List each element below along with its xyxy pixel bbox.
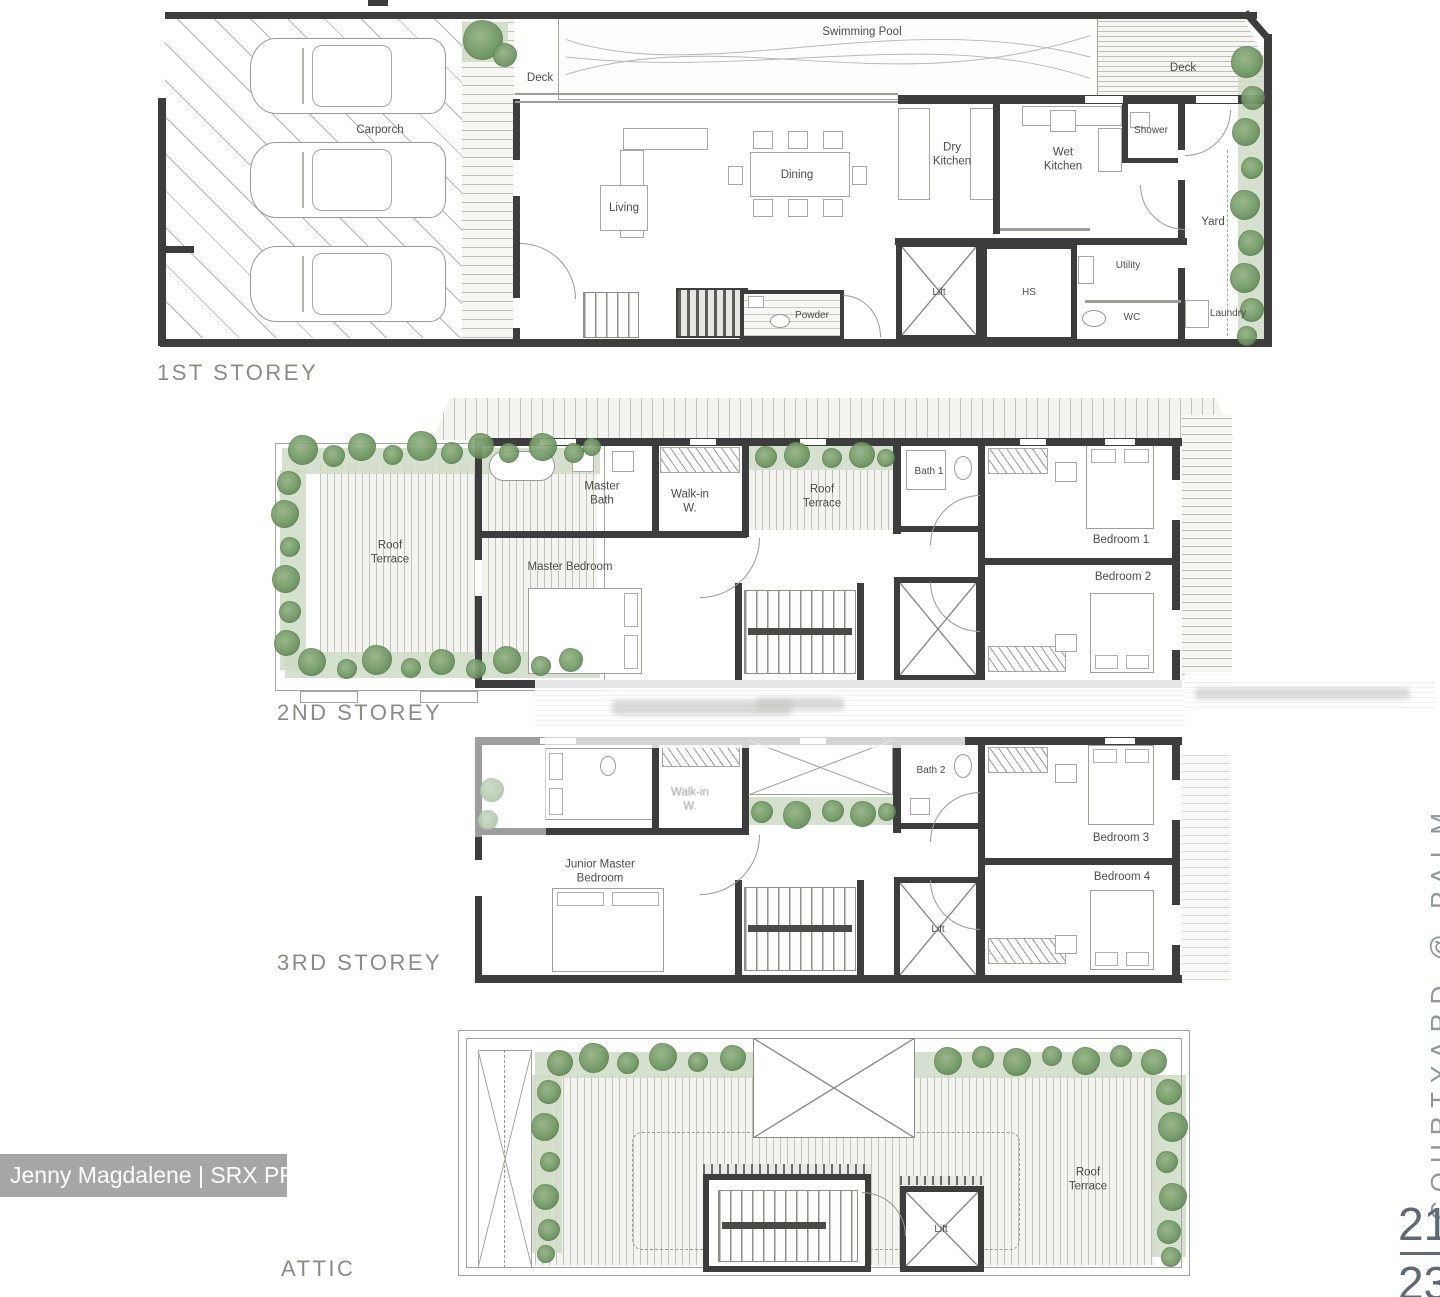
door-swing-icon xyxy=(930,792,980,842)
door-swing-icon xyxy=(700,538,760,598)
smudge xyxy=(756,698,844,710)
wall-opening xyxy=(475,860,482,896)
pillow xyxy=(624,593,638,627)
room-label-yard: Yard xyxy=(1201,215,1224,229)
toilet-icon xyxy=(770,314,790,328)
pillow xyxy=(1124,449,1149,463)
watermark: Jenny Magdalene | SRX PROPERTY xyxy=(0,1154,287,1197)
wall xyxy=(158,246,194,253)
storey-label-2nd: 2ND STOREY xyxy=(277,700,442,726)
window-line xyxy=(515,93,898,95)
room-label-lift-attic: Lift xyxy=(934,1224,947,1237)
door-swing-icon xyxy=(520,243,576,299)
pillow xyxy=(1095,655,1118,669)
window-line xyxy=(515,101,898,103)
wall xyxy=(893,438,901,534)
roof-hatch-band-2nd xyxy=(432,398,1234,440)
pillow xyxy=(1091,449,1116,463)
side-text-vertical: COURTYARD @ PALM xyxy=(1425,640,1440,1220)
furniture xyxy=(910,798,930,815)
wall-opening xyxy=(1178,150,1185,180)
room-label-master-bath: Master Bath xyxy=(584,480,619,509)
wall xyxy=(368,0,388,6)
pillow xyxy=(549,788,563,815)
room-label-utility: Utility xyxy=(1116,260,1140,273)
roof-hatch-right-2nd xyxy=(1182,415,1232,683)
room-label-wet-kitchen: Wet Kitchen xyxy=(1044,146,1082,175)
wall-opening xyxy=(1085,96,1123,103)
wall xyxy=(160,339,1272,347)
washout xyxy=(466,737,546,837)
furniture xyxy=(1078,256,1094,284)
page-total: 23 xyxy=(1398,1259,1440,1297)
car-cabin xyxy=(312,149,392,211)
wall xyxy=(158,98,166,346)
room-label-bedroom-2: Bedroom 2 xyxy=(1095,570,1151,584)
room-label-bedroom-1: Bedroom 1 xyxy=(1093,533,1149,547)
door-swing-icon xyxy=(700,835,760,895)
page-current: 21 xyxy=(1398,1200,1440,1248)
room-label-dining: Dining xyxy=(781,168,814,182)
roof-hatch-right-3rd xyxy=(1182,755,1230,980)
room-label-roof-terrace-left: Roof Terrace xyxy=(371,539,409,568)
room-label-walkin-2: Walk-in W. xyxy=(671,488,709,517)
room-label-deck-left: Deck xyxy=(527,71,553,85)
room-label-bedroom-3: Bedroom 3 xyxy=(1093,831,1149,845)
door-swing-icon xyxy=(1140,185,1185,230)
louvre xyxy=(703,1164,871,1174)
wardrobe xyxy=(988,747,1048,773)
plan-geometry xyxy=(0,0,1440,1297)
wall xyxy=(993,104,1000,234)
storey-label-3rd: 3RD STOREY xyxy=(277,950,442,976)
wall-opening xyxy=(513,160,520,196)
storey-label-1st: 1ST STOREY xyxy=(157,360,318,386)
door-swing-icon xyxy=(930,495,980,545)
window-line xyxy=(1000,228,1090,231)
wall xyxy=(1178,268,1185,345)
wall xyxy=(857,880,864,980)
wall-opening xyxy=(1172,610,1180,650)
wall xyxy=(1122,104,1128,162)
page-indicator: 21 23 xyxy=(1398,1200,1440,1297)
room-label-junior-master: Junior Master Bedroom xyxy=(565,858,635,887)
room-label-roof-terrace-mid: Roof Terrace xyxy=(803,483,841,512)
pillow xyxy=(1095,952,1118,966)
window-line xyxy=(1085,300,1181,303)
wall xyxy=(475,438,482,680)
cross-brace-icon xyxy=(478,1050,532,1268)
toilet-icon xyxy=(600,756,616,776)
pillow xyxy=(612,892,659,906)
car-windshield xyxy=(302,256,304,312)
storey-label-attic: ATTIC xyxy=(281,1256,355,1282)
toilet-icon xyxy=(954,456,972,480)
pillow xyxy=(557,892,604,906)
room-label-walkin-3: Walk-in W. xyxy=(671,786,709,815)
wall xyxy=(742,440,749,537)
room-label-lift-1: Lift xyxy=(932,287,945,300)
door-swing-icon xyxy=(1185,110,1231,156)
furniture xyxy=(748,296,764,308)
room-label-wc: WC xyxy=(1124,312,1141,325)
wall-opening xyxy=(1105,738,1135,744)
pillow xyxy=(1125,749,1149,763)
room-label-laundry: Laundry xyxy=(1210,308,1246,321)
room-label-swimming-pool: Swimming Pool xyxy=(822,25,901,39)
floorplan-page: Swimming Pool Deck Deck Carporch Living … xyxy=(0,0,1440,1297)
furniture xyxy=(612,451,634,472)
wardrobe xyxy=(988,448,1048,474)
furniture xyxy=(1055,462,1077,482)
car-windshield xyxy=(302,152,304,208)
furniture xyxy=(753,199,773,217)
room-label-living: Living xyxy=(609,201,639,215)
furniture xyxy=(1185,300,1209,328)
stair-landing xyxy=(722,1222,826,1229)
room-label-hs: HS xyxy=(1022,287,1036,300)
wall xyxy=(857,583,864,683)
wall-opening xyxy=(1196,96,1238,103)
room-label-bedroom-4: Bedroom 4 xyxy=(1094,870,1150,884)
cross-brace-icon xyxy=(753,1038,915,1138)
pillow xyxy=(549,753,563,780)
wall-opening xyxy=(1020,439,1046,445)
furniture xyxy=(788,199,808,217)
pillow xyxy=(1126,655,1149,669)
car-cabin xyxy=(312,253,392,315)
stair-landing xyxy=(748,628,852,635)
furniture xyxy=(1055,634,1077,652)
room-label-carporch: Carporch xyxy=(356,123,403,137)
car-windshield xyxy=(302,48,304,104)
wall-opening xyxy=(1172,480,1180,520)
wardrobe xyxy=(660,447,740,473)
room-label-shower: Shower xyxy=(1134,125,1168,138)
room-label-bath-2: Bath 2 xyxy=(917,765,946,778)
wall-opening xyxy=(1172,780,1180,820)
wall-opening xyxy=(1172,905,1180,945)
wall xyxy=(1122,158,1180,163)
wall xyxy=(475,438,1182,446)
furniture xyxy=(1055,935,1077,954)
furniture xyxy=(1050,110,1076,132)
room-label-powder: Powder xyxy=(795,310,829,323)
furniture xyxy=(1055,764,1077,783)
wall-opening xyxy=(1105,439,1135,445)
wall-opening xyxy=(513,298,520,328)
wall xyxy=(652,739,659,835)
furniture xyxy=(823,199,843,217)
page-divider xyxy=(1400,1252,1440,1255)
stairs xyxy=(583,292,639,338)
pillow xyxy=(1126,952,1149,966)
wall xyxy=(893,737,901,833)
toilet-icon xyxy=(1082,310,1106,327)
furniture xyxy=(623,128,708,150)
wall xyxy=(475,975,1182,983)
room-label-bath-1: Bath 1 xyxy=(915,466,944,479)
furniture xyxy=(852,166,867,185)
room-label-lift-3: Lift xyxy=(931,924,944,937)
room-label-master-bedroom: Master Bedroom xyxy=(527,560,612,574)
wall-opening xyxy=(475,560,482,596)
stair-ramp-hatch xyxy=(676,288,748,338)
louvre xyxy=(900,1176,984,1185)
wall xyxy=(735,880,742,980)
room-label-deck-right: Deck xyxy=(1170,61,1196,75)
furniture xyxy=(823,131,843,149)
toilet-icon xyxy=(954,754,972,778)
wall xyxy=(735,583,742,683)
stair-landing xyxy=(748,925,852,932)
car-cabin xyxy=(312,45,392,107)
smudge xyxy=(1195,688,1410,699)
furniture xyxy=(788,131,808,149)
furniture xyxy=(753,131,773,149)
furniture xyxy=(728,166,743,185)
wall-opening xyxy=(690,439,716,445)
room-label-roof-terrace-attic: Roof Terrace xyxy=(1069,1166,1107,1195)
room-label-dry-kitchen: Dry Kitchen xyxy=(933,141,971,170)
furniture xyxy=(1098,128,1122,172)
door-swing-icon xyxy=(843,295,881,337)
pillow xyxy=(624,635,638,669)
cross-brace-icon xyxy=(900,583,976,675)
wall xyxy=(165,12,1257,19)
wall xyxy=(652,440,659,537)
wall xyxy=(475,531,747,538)
cross-brace-icon xyxy=(748,740,893,795)
wall xyxy=(985,558,1175,565)
wall xyxy=(1264,34,1272,347)
pillow xyxy=(1093,749,1117,763)
furniture xyxy=(898,108,930,200)
wall xyxy=(985,858,1175,865)
